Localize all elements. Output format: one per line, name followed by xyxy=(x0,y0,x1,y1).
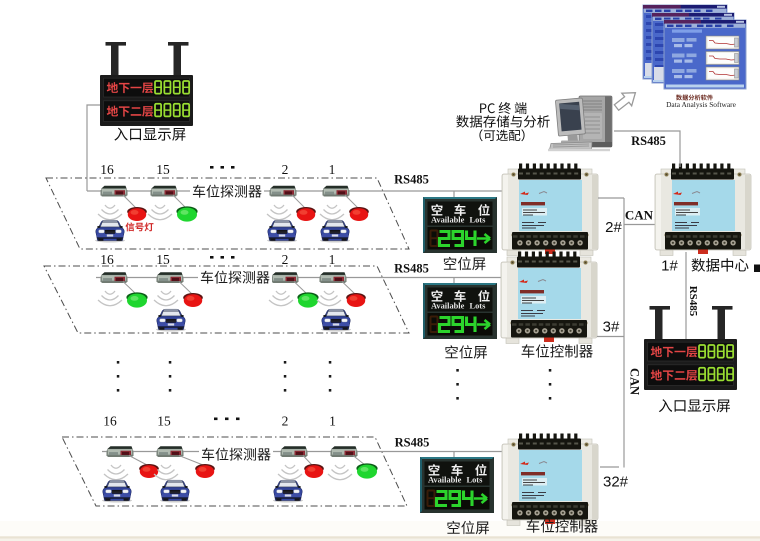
svg-text:16: 16 xyxy=(103,414,117,429)
svg-text:1: 1 xyxy=(329,252,336,267)
svg-text:16: 16 xyxy=(100,252,114,267)
svg-text:15: 15 xyxy=(157,414,171,429)
svg-text:RS485: RS485 xyxy=(394,173,429,187)
svg-text:RS485: RS485 xyxy=(394,262,429,276)
svg-text:RS485: RS485 xyxy=(631,134,666,148)
svg-text:2: 2 xyxy=(282,162,289,177)
svg-text:Data Analysis Software: Data Analysis Software xyxy=(666,100,737,109)
svg-text:3#: 3# xyxy=(603,319,620,336)
svg-text:CAN: CAN xyxy=(628,368,642,395)
svg-text:16: 16 xyxy=(100,162,114,177)
svg-text:15: 15 xyxy=(156,162,170,177)
svg-text:1: 1 xyxy=(329,162,336,177)
svg-text:1: 1 xyxy=(329,414,336,429)
svg-text:32#: 32# xyxy=(603,474,629,491)
svg-text:RS485: RS485 xyxy=(395,436,430,450)
svg-text:2: 2 xyxy=(282,252,289,267)
svg-text:CAN: CAN xyxy=(625,208,654,223)
svg-text:2: 2 xyxy=(282,414,289,429)
svg-text:1#: 1# xyxy=(661,258,678,275)
svg-text:2#: 2# xyxy=(605,219,622,236)
svg-text:15: 15 xyxy=(156,252,170,267)
svg-text:RS485: RS485 xyxy=(687,286,699,317)
